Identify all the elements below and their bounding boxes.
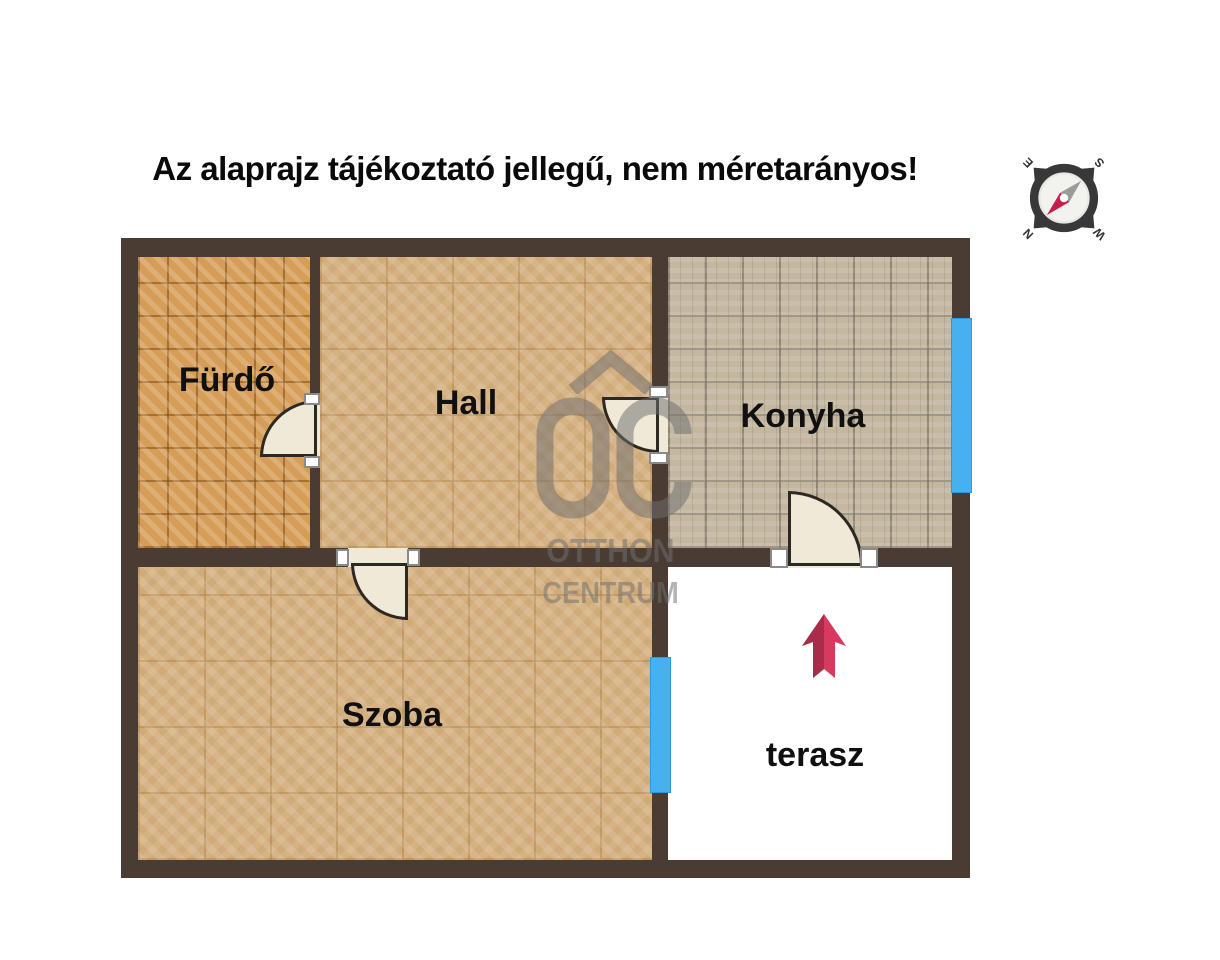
room-label-terasz: terasz [725,738,905,772]
door-jamb [336,549,349,566]
room-floor-furdo [138,257,310,548]
room-label-szoba: Szoba [302,698,482,732]
room-floor-terasz [668,567,952,860]
entrance-arrow-icon [800,612,848,682]
door-jamb [407,549,420,566]
wall-west [121,238,138,878]
floor-plan: Fürdő Hall Konyha Szoba terasz OTTHON CE… [0,0,1220,960]
door-jamb [304,456,320,468]
wall-south [121,860,970,878]
door-jamb [770,548,788,568]
window-konyha-east [951,318,972,493]
wall-north [121,238,970,257]
window-szoba-east [650,657,671,793]
room-label-hall: Hall [376,386,556,420]
floor-plan-page: Az alaprajz tájékoztató jellegű, nem mér… [0,0,1220,960]
room-label-konyha: Konyha [713,399,893,433]
room-label-furdo: Fürdő [137,363,317,397]
door-jamb [649,452,668,464]
door-jamb [649,386,668,398]
door-jamb [860,548,878,568]
